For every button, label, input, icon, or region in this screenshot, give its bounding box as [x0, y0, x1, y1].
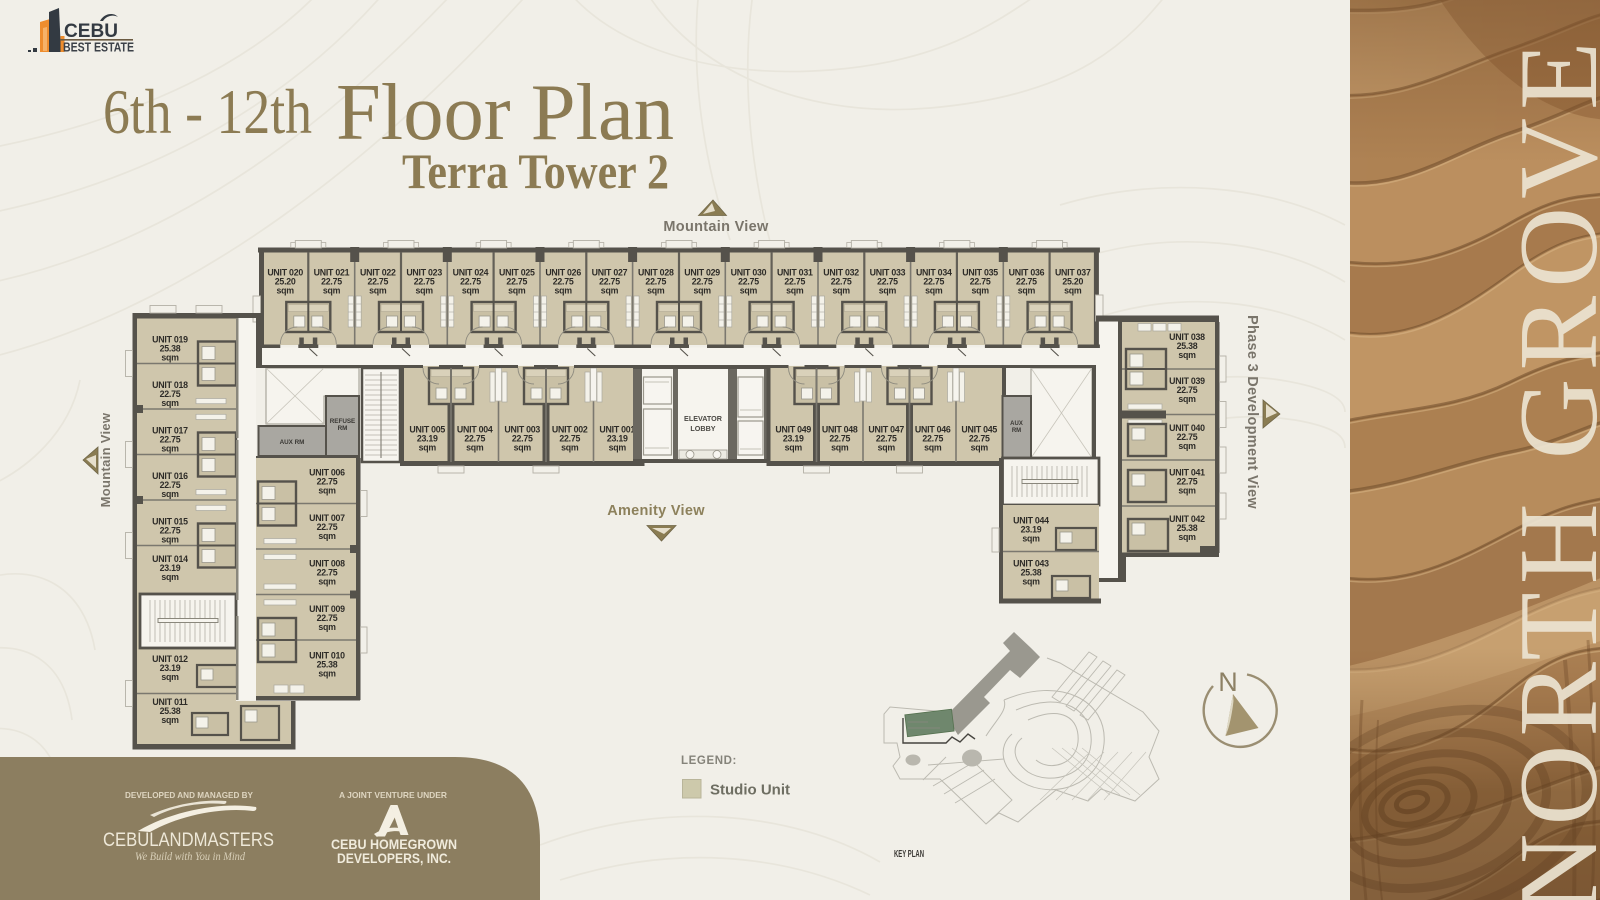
svg-text:sqm: sqm [161, 398, 179, 408]
svg-text:sqm: sqm [971, 285, 989, 295]
svg-text:sqm: sqm [925, 285, 943, 295]
svg-text:sqm: sqm [161, 534, 179, 544]
svg-text:sqm: sqm [161, 715, 179, 725]
svg-text:CEBU HOMEGROWN: CEBU HOMEGROWN [331, 837, 457, 852]
svg-text:Studio Unit: Studio Unit [710, 782, 790, 799]
svg-text:sqm: sqm [462, 285, 480, 295]
svg-text:Mountain View: Mountain View [98, 412, 113, 507]
svg-text:Mountain View: Mountain View [663, 219, 769, 235]
svg-text:AUX RM: AUX RM [280, 439, 305, 446]
svg-text:sqm: sqm [785, 442, 803, 452]
svg-text:sqm: sqm [924, 442, 942, 452]
svg-text:sqm: sqm [1022, 576, 1040, 586]
svg-text:sqm: sqm [318, 668, 336, 678]
svg-text:sqm: sqm [514, 442, 532, 452]
svg-text:sqm: sqm [786, 285, 804, 295]
svg-text:sqm: sqm [609, 442, 627, 452]
svg-text:RM: RM [1012, 428, 1021, 434]
svg-text:6th - 12th: 6th - 12th [103, 76, 312, 147]
svg-text:N: N [1218, 667, 1238, 697]
svg-text:AUX: AUX [1010, 421, 1023, 427]
svg-text:REFUSE: REFUSE [330, 418, 356, 425]
svg-text:sqm: sqm [554, 285, 572, 295]
svg-text:ELEVATOR: ELEVATOR [684, 414, 723, 423]
svg-text:DEVELOPERS, INC.: DEVELOPERS, INC. [337, 851, 451, 866]
svg-text:sqm: sqm [323, 285, 341, 295]
svg-text:sqm: sqm [879, 285, 897, 295]
svg-text:Phase 3 Development View: Phase 3 Development View [1244, 315, 1260, 509]
svg-text:Amenity View: Amenity View [607, 503, 705, 519]
svg-text:DEVELOPED AND MANAGED BY: DEVELOPED AND MANAGED BY [125, 790, 253, 800]
svg-text:sqm: sqm [466, 442, 484, 452]
svg-text:sqm: sqm [369, 285, 387, 295]
svg-text:sqm: sqm [1178, 350, 1196, 360]
svg-text:sqm: sqm [508, 285, 526, 295]
svg-text:sqm: sqm [1018, 285, 1036, 295]
svg-text:sqm: sqm [1178, 532, 1196, 542]
svg-text:sqm: sqm [318, 485, 336, 495]
svg-text:sqm: sqm [561, 442, 579, 452]
svg-text:sqm: sqm [831, 442, 849, 452]
svg-text:sqm: sqm [415, 285, 433, 295]
svg-text:sqm: sqm [1178, 394, 1196, 404]
svg-text:sqm: sqm [693, 285, 711, 295]
svg-text:sqm: sqm [318, 576, 336, 586]
svg-text:sqm: sqm [419, 442, 437, 452]
svg-text:KEY PLAN: KEY PLAN [894, 849, 924, 860]
svg-text:LEGEND:: LEGEND: [681, 755, 737, 767]
svg-text:Terra Tower 2: Terra Tower 2 [402, 143, 669, 199]
svg-text:sqm: sqm [601, 285, 619, 295]
svg-text:sqm: sqm [832, 285, 850, 295]
svg-text:RM: RM [338, 425, 348, 432]
svg-text:sqm: sqm [1022, 533, 1040, 543]
svg-text:sqm: sqm [740, 285, 758, 295]
svg-text:LOBBY: LOBBY [690, 424, 715, 433]
svg-text:sqm: sqm [1178, 441, 1196, 451]
svg-text:sqm: sqm [161, 572, 179, 582]
svg-text:sqm: sqm [971, 442, 989, 452]
svg-text:sqm: sqm [276, 285, 294, 295]
svg-text:NORTH GROVE: NORTH GROVE [1497, 34, 1600, 900]
svg-text:BEST ESTATE: BEST ESTATE [63, 40, 134, 55]
svg-text:sqm: sqm [1064, 285, 1082, 295]
svg-text:sqm: sqm [318, 531, 336, 541]
svg-text:We Build with You in Mind: We Build with You in Mind [135, 849, 246, 863]
svg-text:A JOINT VENTURE UNDER: A JOINT VENTURE UNDER [339, 790, 447, 800]
svg-text:sqm: sqm [161, 489, 179, 499]
svg-text:sqm: sqm [161, 443, 179, 453]
svg-text:sqm: sqm [1178, 485, 1196, 495]
svg-text:sqm: sqm [161, 672, 179, 682]
svg-text:sqm: sqm [318, 622, 336, 632]
svg-text:sqm: sqm [161, 352, 179, 362]
svg-text:CEBULANDMASTERS: CEBULANDMASTERS [103, 830, 274, 851]
svg-text:sqm: sqm [647, 285, 665, 295]
svg-text:sqm: sqm [878, 442, 896, 452]
